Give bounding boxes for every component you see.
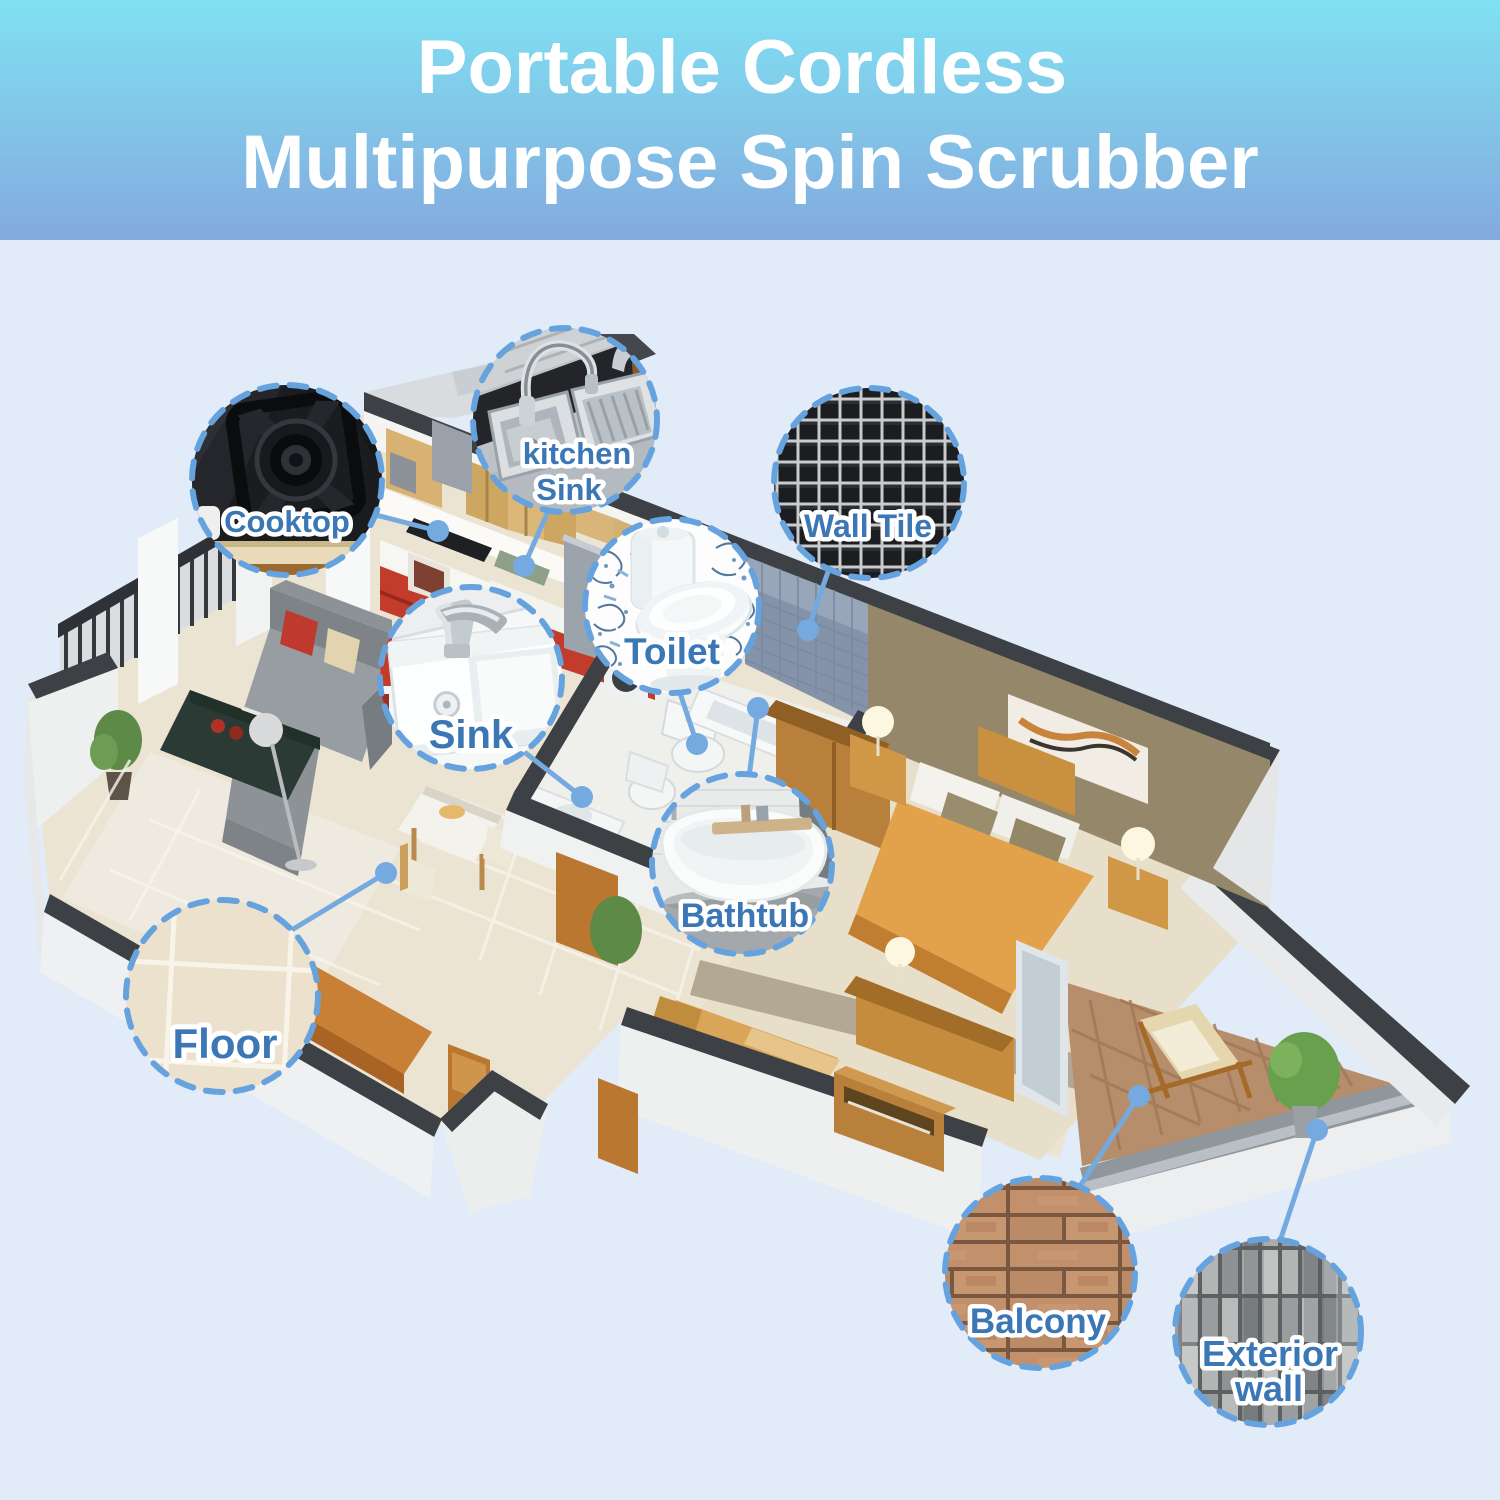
svg-text:Wall Tile: Wall Tile bbox=[804, 508, 932, 544]
svg-text:Cooktop: Cooktop bbox=[224, 504, 350, 539]
svg-text:Floor: Floor bbox=[173, 1020, 278, 1067]
svg-text:Toilet: Toilet bbox=[624, 631, 720, 672]
svg-text:wall: wall bbox=[1234, 1368, 1303, 1409]
svg-text:Bathtub: Bathtub bbox=[681, 897, 809, 935]
svg-text:Sink: Sink bbox=[536, 472, 602, 507]
svg-text:Balcony: Balcony bbox=[970, 1302, 1107, 1341]
svg-text:Multipurpose Spin Scrubber: Multipurpose Spin Scrubber bbox=[241, 120, 1259, 205]
svg-text:kitchen: kitchen bbox=[523, 436, 632, 471]
svg-text:Portable Cordless: Portable Cordless bbox=[417, 25, 1067, 110]
svg-text:Sink: Sink bbox=[429, 713, 514, 757]
